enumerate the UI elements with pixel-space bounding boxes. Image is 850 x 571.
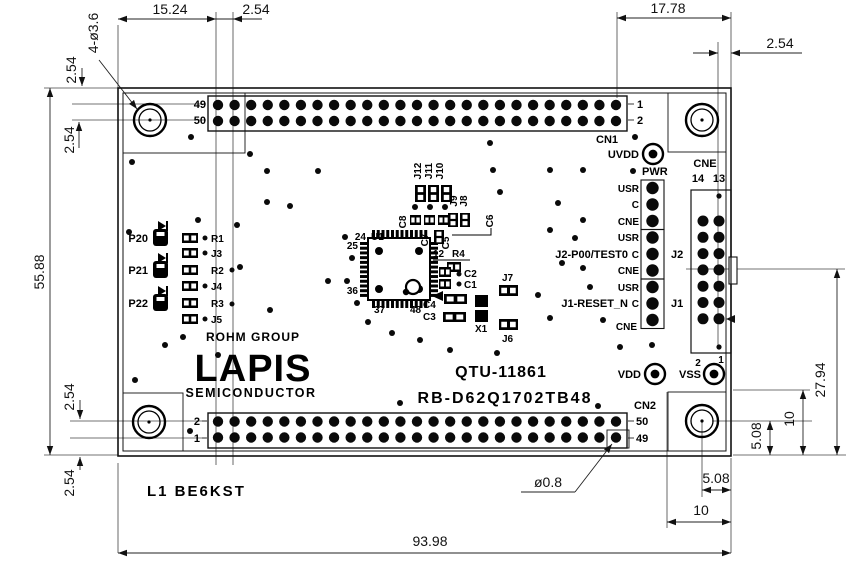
cne-header: CNE 14 13: [691, 158, 735, 353]
u1-pin-stub: [401, 300, 404, 308]
connector-pin: [213, 432, 223, 442]
u1-pin-stub: [396, 230, 399, 238]
connector-pin: [428, 432, 438, 442]
j2-label: J2: [671, 249, 683, 261]
connector-pin: [279, 416, 289, 426]
board-edge-tab: [729, 257, 737, 284]
label-bullet-dot: [230, 268, 235, 273]
via-dot: [427, 204, 433, 210]
footprint-hole: [444, 195, 450, 200]
vss-label: VSS: [679, 369, 701, 381]
via-dot: [315, 168, 321, 174]
dim-phi0-8: ø0.8: [534, 474, 562, 490]
footprint-hole: [451, 215, 456, 219]
connector-pin: [528, 432, 538, 442]
dim-17-78: 17.78: [650, 0, 685, 16]
footprint-hole: [184, 251, 189, 256]
u1-pin-stub: [360, 284, 368, 287]
via-dot: [264, 199, 270, 205]
footprint-hole: [455, 265, 459, 270]
connector-pin: [263, 100, 273, 110]
connector-pin: [561, 100, 571, 110]
cn1-pin50-label: 50: [194, 115, 206, 127]
power-pads: UVDD PWR VDD VSS 2 1: [608, 144, 724, 384]
connector-pin: [362, 432, 372, 442]
cn1-pin1-label: 1: [637, 99, 643, 111]
footprint-hole: [418, 187, 424, 192]
via-dot: [600, 317, 606, 323]
via-dot: [325, 278, 331, 284]
via-dot: [417, 337, 423, 343]
connector-pin: [611, 116, 621, 126]
cne-pins: [698, 193, 725, 349]
j1-label: J1: [671, 298, 683, 310]
u1-pin-stub: [430, 266, 438, 269]
footprint-hole: [444, 218, 447, 223]
dim-2-54-left-3: 2.54: [61, 383, 77, 410]
j2-note: J2-P00/TEST0: [555, 249, 628, 261]
u1-pin-stub: [391, 300, 394, 308]
jumper-pin: [646, 198, 658, 210]
cne-body: [691, 190, 731, 353]
cne-label: CNE: [693, 158, 716, 170]
via-dot: [442, 204, 448, 210]
connector-pin: [478, 116, 488, 126]
footprint-hole: [191, 268, 196, 273]
via-dot: [595, 403, 601, 409]
u1-pin-stub: [360, 280, 368, 283]
jumper-row-1: C: [632, 200, 639, 211]
connector-pin: [445, 100, 455, 110]
cne-small-dot: [716, 193, 721, 198]
connector-pin: [296, 416, 306, 426]
connector-pin: [279, 432, 289, 442]
mounting-hole-center: [700, 419, 703, 422]
footprint-hole: [191, 301, 196, 306]
via-dot: [580, 167, 586, 173]
led-body: [153, 229, 168, 246]
j6-label: J6: [502, 334, 514, 345]
jumper-pin: [646, 264, 658, 276]
via-dot: [630, 168, 636, 174]
footprint-hole: [431, 195, 437, 200]
r2-label: R2: [211, 266, 224, 277]
jumper-row-3: USR: [618, 233, 640, 244]
connector-pin: [345, 116, 355, 126]
label-bullet-dot: [203, 284, 208, 289]
via-dot: [365, 319, 371, 325]
jumper-pin: [646, 297, 658, 309]
u1-pin-stub: [430, 247, 438, 250]
via-dot: [397, 400, 403, 406]
cn1-label: CN1: [596, 134, 618, 146]
connector-pin: [296, 100, 306, 110]
r4-label: R4: [452, 249, 465, 260]
jumper-pads: [646, 182, 658, 326]
via-dot: [264, 168, 270, 174]
j3-label: J3: [211, 249, 223, 260]
connector-pin: [229, 116, 239, 126]
connector-pin: [362, 116, 372, 126]
vdd-label: VDD: [618, 369, 641, 381]
footprint-hole: [501, 322, 507, 328]
via-dot: [649, 342, 655, 348]
led-symbols: [153, 221, 168, 311]
connector-pin: [362, 100, 372, 110]
via-dot: [287, 203, 293, 209]
footprint-hole: [510, 288, 516, 294]
via-dot: [187, 428, 193, 434]
via-dot: [580, 217, 586, 223]
jumper-pin: [646, 248, 658, 260]
connector-pin: [544, 100, 554, 110]
connector-pin: [246, 100, 256, 110]
u1-pin-stub: [430, 261, 438, 264]
via-dot: [547, 227, 553, 233]
cne-pin: [698, 281, 709, 292]
jumper-pin: [646, 281, 658, 293]
u1-pin-stub: [430, 275, 438, 278]
connector-pin: [379, 116, 389, 126]
connector-pin: [379, 416, 389, 426]
dim-5-08-right: 5.08: [748, 422, 764, 449]
u1-pin-stub: [377, 230, 380, 238]
connector-pin: [578, 100, 588, 110]
connector-pin: [263, 416, 273, 426]
footprint-hole: [191, 317, 196, 322]
connector-pin: [528, 100, 538, 110]
r3-label: R3: [211, 299, 224, 310]
via-dot: [349, 255, 355, 261]
u1-corner-dot: [375, 247, 383, 255]
footprint-hole: [437, 238, 442, 242]
cn2-label: CN2: [634, 400, 656, 412]
connector-pin: [578, 432, 588, 442]
r1-label: R1: [211, 234, 224, 245]
label-bullet-dot: [230, 302, 235, 307]
connector-pin: [445, 432, 455, 442]
p22-label: P22: [128, 298, 148, 310]
u1-pin-stub: [360, 251, 368, 254]
dim-15-24: 15.24: [152, 1, 187, 17]
vdd-pad-center: [651, 370, 660, 379]
connector-pin: [611, 432, 621, 442]
connector-pin: [329, 116, 339, 126]
cne-pin: [714, 264, 725, 275]
connector-pin: [561, 416, 571, 426]
led-slot: [157, 264, 165, 268]
connector-pin: [412, 432, 422, 442]
connector-pin: [229, 100, 239, 110]
footprint-hole: [510, 322, 516, 328]
j11-label: J11: [424, 162, 435, 179]
connector-pin: [462, 100, 472, 110]
connector-pin: [246, 416, 256, 426]
via-dot: [188, 134, 194, 140]
connector-pin: [329, 100, 339, 110]
connector-pin: [611, 416, 621, 426]
connector-pin: [296, 116, 306, 126]
connector-pin: [279, 100, 289, 110]
u1-pin-stub: [360, 275, 368, 278]
connector-pin: [428, 416, 438, 426]
via-dot: [215, 352, 221, 358]
via-dot: [547, 315, 553, 321]
j12-label: J12: [413, 162, 424, 179]
dim-55-88: 55.88: [31, 254, 47, 289]
connector-pin: [312, 432, 322, 442]
footprint-hole: [411, 218, 414, 223]
via-dot: [587, 284, 593, 290]
jumper-row-4: C: [632, 250, 639, 261]
connector-pin: [478, 432, 488, 442]
dim-2-54-top-right: 2.54: [766, 35, 793, 51]
connector-pin: [611, 100, 621, 110]
u1-pin-stub: [360, 270, 368, 273]
u1-pin-stub: [386, 230, 389, 238]
x1-label: X1: [475, 324, 488, 335]
led-body: [153, 261, 168, 278]
footprint-hole: [444, 187, 450, 192]
footprint-hole: [451, 221, 456, 225]
dim-2-54-left-1: 2.54: [63, 56, 79, 83]
connector-pin: [462, 116, 472, 126]
footprint-hole: [418, 195, 424, 200]
cne-pin: [714, 297, 725, 308]
connector-pin: [379, 100, 389, 110]
dim-5-08-bottom: 5.08: [702, 470, 729, 486]
pwr-label: PWR: [642, 166, 668, 178]
connector-pin: [528, 416, 538, 426]
connector-pin: [246, 116, 256, 126]
u1-pin-stub: [415, 300, 418, 308]
footprint-hole: [440, 270, 444, 275]
bottom-note: L1 BE6KST: [147, 483, 246, 500]
u1-pin-stub: [372, 300, 375, 308]
footprint-hole: [457, 297, 464, 302]
connector-pin: [345, 416, 355, 426]
u1-pin-stub: [415, 230, 418, 238]
c7-label: C7: [420, 233, 431, 246]
connector-pin: [594, 100, 604, 110]
j8-label: J8: [459, 195, 470, 207]
board-number: RB-D62Q1702TB48: [418, 390, 593, 407]
connector-pin: [495, 116, 505, 126]
led-slot: [157, 297, 165, 301]
via-dot: [494, 350, 500, 356]
connector-pin: [594, 416, 604, 426]
via-dot: [547, 167, 553, 173]
mounting-hole-center: [148, 118, 151, 121]
connector-pin: [462, 432, 472, 442]
connector-pin: [528, 116, 538, 126]
footprint-hole: [191, 284, 196, 289]
x1-pad: [475, 295, 488, 307]
mounting-hole-center: [700, 118, 703, 121]
via-dot: [234, 222, 240, 228]
connector-pin: [544, 432, 554, 442]
led-body: [153, 294, 168, 311]
led-slot: [157, 232, 165, 236]
u1-pin-stub: [430, 270, 438, 273]
footprint-hole: [437, 232, 442, 236]
connector-pin: [594, 116, 604, 126]
jumper-row-7: C: [632, 299, 639, 310]
footprint-hole: [184, 284, 189, 289]
cne-pin: [698, 297, 709, 308]
via-dot: [389, 330, 395, 336]
lapis-logo: LAPIS: [195, 348, 312, 390]
u1-pin-stub: [377, 300, 380, 308]
footprint-hole: [446, 315, 453, 320]
connector-pin: [578, 116, 588, 126]
connector-pin: [428, 116, 438, 126]
label-bullet-dot: [457, 272, 462, 277]
connector-pin: [312, 100, 322, 110]
u1-pin-stub: [360, 261, 368, 264]
cn2-pin49-label: 49: [636, 433, 648, 445]
via-dot: [555, 200, 561, 206]
via-dot: [162, 342, 168, 348]
via-dot: [487, 140, 493, 146]
cn2-pin50-label: 50: [636, 416, 648, 428]
footprint-hole: [439, 218, 442, 223]
cn2-pin1-label: 1: [194, 433, 200, 445]
via-dot: [447, 347, 453, 353]
u1-pin-stub: [410, 230, 413, 238]
cne-small-dot: [716, 344, 721, 349]
connector-pin: [445, 416, 455, 426]
cne-pin: [698, 264, 709, 275]
footprint-hole: [184, 236, 189, 241]
connector-pin: [329, 416, 339, 426]
cne-pin: [698, 313, 709, 324]
via-dot: [632, 134, 638, 140]
cne-pin: [714, 248, 725, 259]
jumper-row-2: CNE: [618, 217, 639, 228]
j1-note: J1-RESET_N: [561, 298, 628, 310]
u1-corner-dot: [375, 285, 383, 293]
connector-pin: [561, 432, 571, 442]
via-dot: [342, 234, 348, 240]
connector-pin: [594, 432, 604, 442]
u1-pin-stub: [382, 300, 385, 308]
u1-pin-stub: [430, 256, 438, 259]
u1-corner-dot: [415, 247, 423, 255]
label-bullet-dot: [203, 236, 208, 241]
u1-pin-stub: [386, 300, 389, 308]
connector-pin: [379, 432, 389, 442]
footprint-hole: [447, 297, 454, 302]
footprint-hole: [191, 251, 196, 256]
connector-pin: [229, 432, 239, 442]
jumper-row-5: CNE: [618, 266, 639, 277]
j7-label: J7: [502, 273, 514, 284]
footprint-hole: [431, 187, 437, 192]
x1-pad: [475, 310, 488, 322]
via-dot: [490, 167, 496, 173]
footprint-hole: [184, 317, 189, 322]
u1-pin-stub: [430, 289, 438, 292]
connector-pin: [362, 416, 372, 426]
cne-pin: [714, 216, 725, 227]
jumper-pin: [646, 215, 658, 227]
u1-pin-stub: [410, 300, 413, 308]
jumper-row-8: CNE: [616, 322, 637, 333]
label-bullet-dot: [203, 251, 208, 256]
uvdd-label: UVDD: [608, 149, 639, 161]
connector-pin: [462, 416, 472, 426]
via-dot: [572, 235, 578, 241]
j5-label: J5: [211, 315, 223, 326]
cn1-pin2-label: 2: [637, 115, 643, 127]
footprint-hole: [456, 315, 463, 320]
vss-pad-center: [710, 370, 719, 379]
connector-pin: [345, 100, 355, 110]
cne-pin: [714, 232, 725, 243]
jumper-pin: [646, 314, 658, 326]
connector-pin: [395, 100, 405, 110]
connector-pin: [495, 100, 505, 110]
connector-pin: [561, 116, 571, 126]
dim-2-54-top-left: 2.54: [242, 1, 269, 17]
u1-pin-stub: [430, 284, 438, 287]
connector-pin: [544, 116, 554, 126]
jumper-row-6: USR: [618, 283, 640, 294]
footprint-hole: [440, 282, 444, 287]
u1-pin-stub: [382, 230, 385, 238]
connector-pin: [511, 116, 521, 126]
connector-pin: [511, 416, 521, 426]
footprint-hole: [446, 270, 450, 275]
via-dot: [344, 278, 350, 284]
via-dot: [237, 264, 243, 270]
u1-pin-stub: [360, 242, 368, 245]
via-dot: [129, 159, 135, 165]
c1-label: C1: [464, 280, 477, 291]
connector-pin: [312, 116, 322, 126]
dim-2-54-left-2: 2.54: [61, 126, 77, 153]
u1-pin-stub: [396, 300, 399, 308]
part-number: QTU-11861: [455, 364, 547, 381]
connector-pin: [428, 100, 438, 110]
drawing-canvas: 15.24 2.54 17.78 2.54 2.54 2.54 55.88 2.…: [0, 0, 850, 571]
c2-label: C2: [464, 269, 477, 280]
via-dot: [180, 334, 186, 340]
connector-pin: [329, 432, 339, 442]
p21-label: P21: [128, 265, 148, 277]
u1-pin25: 25: [347, 241, 359, 252]
cne-pin14-label: 14: [692, 173, 705, 185]
u1-pin-stub: [430, 251, 438, 254]
vss-pin2-label: 2: [695, 358, 701, 369]
connector-pin: [395, 432, 405, 442]
c6-label: C6: [485, 214, 496, 227]
footprint-hole: [191, 236, 196, 241]
dim-2-54-left-4: 2.54: [61, 469, 77, 496]
cne-pin: [698, 216, 709, 227]
jumper-column: USR C CNE USR C CNE USR C CNE J2 J1 J2-P…: [555, 180, 683, 333]
connector-pin: [345, 432, 355, 442]
connector-pin: [578, 416, 588, 426]
u1-pin-stub: [360, 247, 368, 250]
cn2-pin2-label: 2: [194, 416, 200, 428]
dim-10-bottom: 10: [693, 502, 709, 518]
connector-pin: [395, 416, 405, 426]
connector-pin: [495, 416, 505, 426]
connector-pin: [478, 416, 488, 426]
connector-pin: [229, 416, 239, 426]
